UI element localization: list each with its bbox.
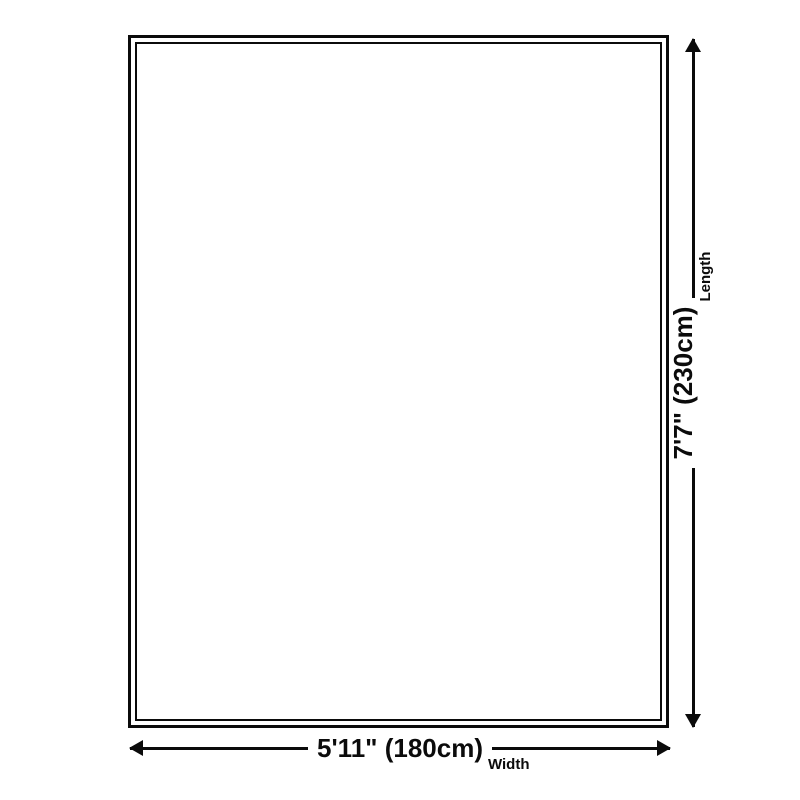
dimension-line (692, 468, 695, 727)
arrow-right-icon (657, 740, 671, 756)
length-value: 7'7" (230cm) (670, 307, 696, 460)
width-dimension-arrow: 5'11" (180cm) Width (130, 733, 670, 763)
length-dimension-arrow: 7'7" (230cm) Length (678, 39, 708, 727)
length-label: Length (698, 252, 713, 302)
length-arrow-segment-top: Length (678, 39, 708, 298)
length-arrow-segment-bottom (678, 468, 708, 727)
arrow-down-icon (685, 714, 701, 728)
dimension-line (130, 747, 308, 750)
width-value: 5'11" (180cm) (317, 735, 483, 761)
dimension-line (492, 747, 670, 750)
arrow-left-icon (129, 740, 143, 756)
dimension-line (692, 39, 695, 298)
arrow-up-icon (685, 38, 701, 52)
width-label: Width (488, 757, 530, 772)
width-arrow-segment-right: Width (492, 733, 670, 763)
width-arrow-segment-left (130, 733, 308, 763)
rug-inner-outline (135, 42, 662, 721)
rug-outline (128, 35, 669, 728)
